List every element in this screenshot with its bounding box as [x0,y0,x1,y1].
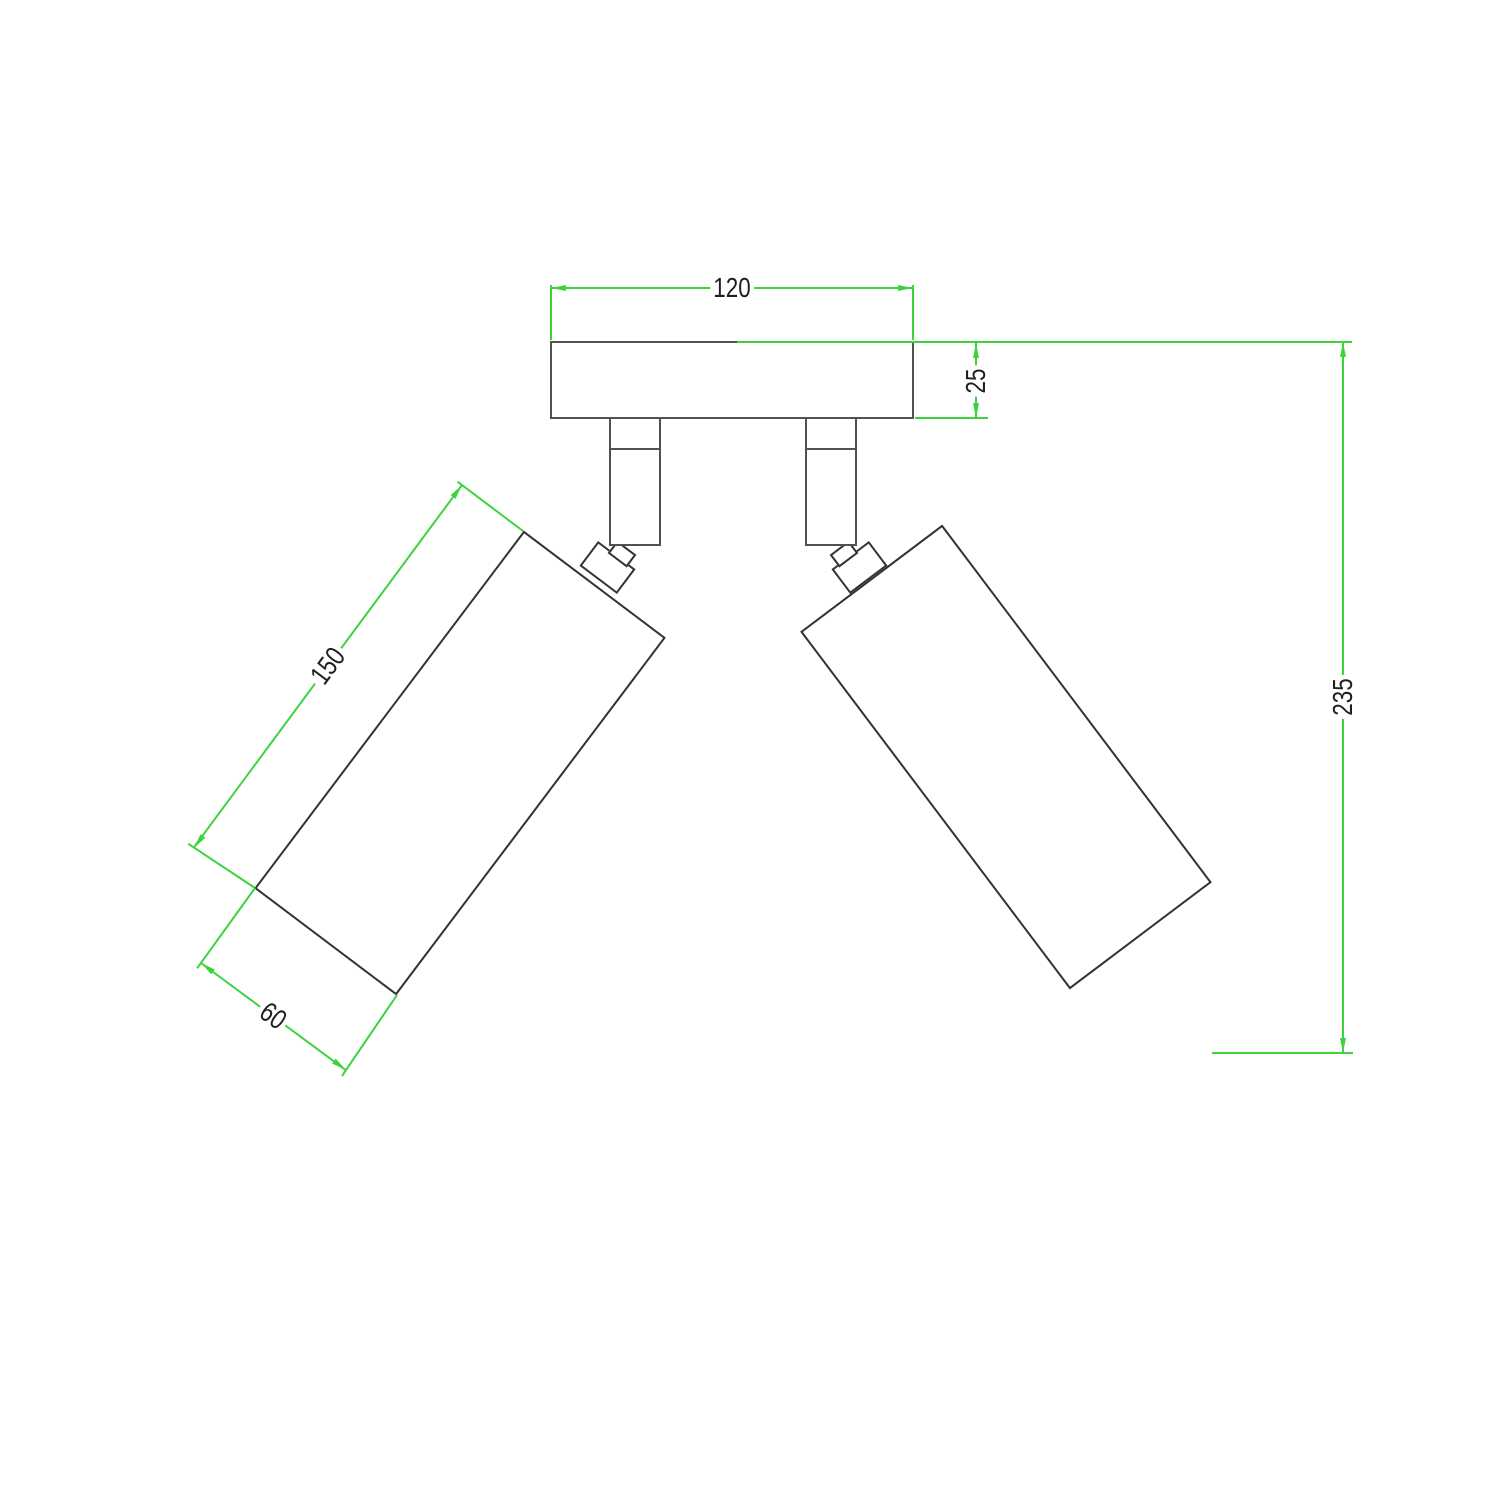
dim-120-arrow-left [551,285,566,291]
dim-120-extension-right [912,285,914,340]
dim-150-arrow-bottom [192,834,206,850]
mounting-plate [550,341,914,419]
left-spotlight-body [254,531,666,996]
dim-235-arrow-top [1340,342,1346,357]
dim-150-arrow-top [451,483,465,499]
dim-120-extension-left [550,285,552,340]
dim-120-arrow-right [898,285,913,291]
dim-60-arrow-left [199,960,215,974]
left-stem-joint-line [609,448,661,450]
dim-60-arrow-right [332,1058,348,1072]
right-stem-joint-line [805,448,857,450]
dim-150-label: 150 [303,639,353,692]
dim-235-label: 235 [1328,675,1358,719]
dim-150-extension-top [457,481,524,532]
dim-25-arrow-bottom [973,403,979,418]
dim-235-extension-top [737,341,1352,343]
dim-150-extension-bottom [188,843,256,889]
dimension-drawing-canvas: 120 25 150 60 235 [0,0,1500,1500]
dim-60-extension-left [196,887,256,968]
dim-60-label: 60 [251,995,294,1038]
dim-235-arrow-bottom [1340,1038,1346,1053]
left-stem [609,416,661,546]
dim-60-extension-right [341,994,398,1076]
right-stem [805,416,857,546]
dim-25-label: 25 [961,365,991,396]
dim-235-extension-bottom [1212,1052,1353,1054]
right-spotlight-body [800,525,1212,990]
dim-25-arrow-top [973,343,979,358]
dim-120-label: 120 [710,273,754,303]
